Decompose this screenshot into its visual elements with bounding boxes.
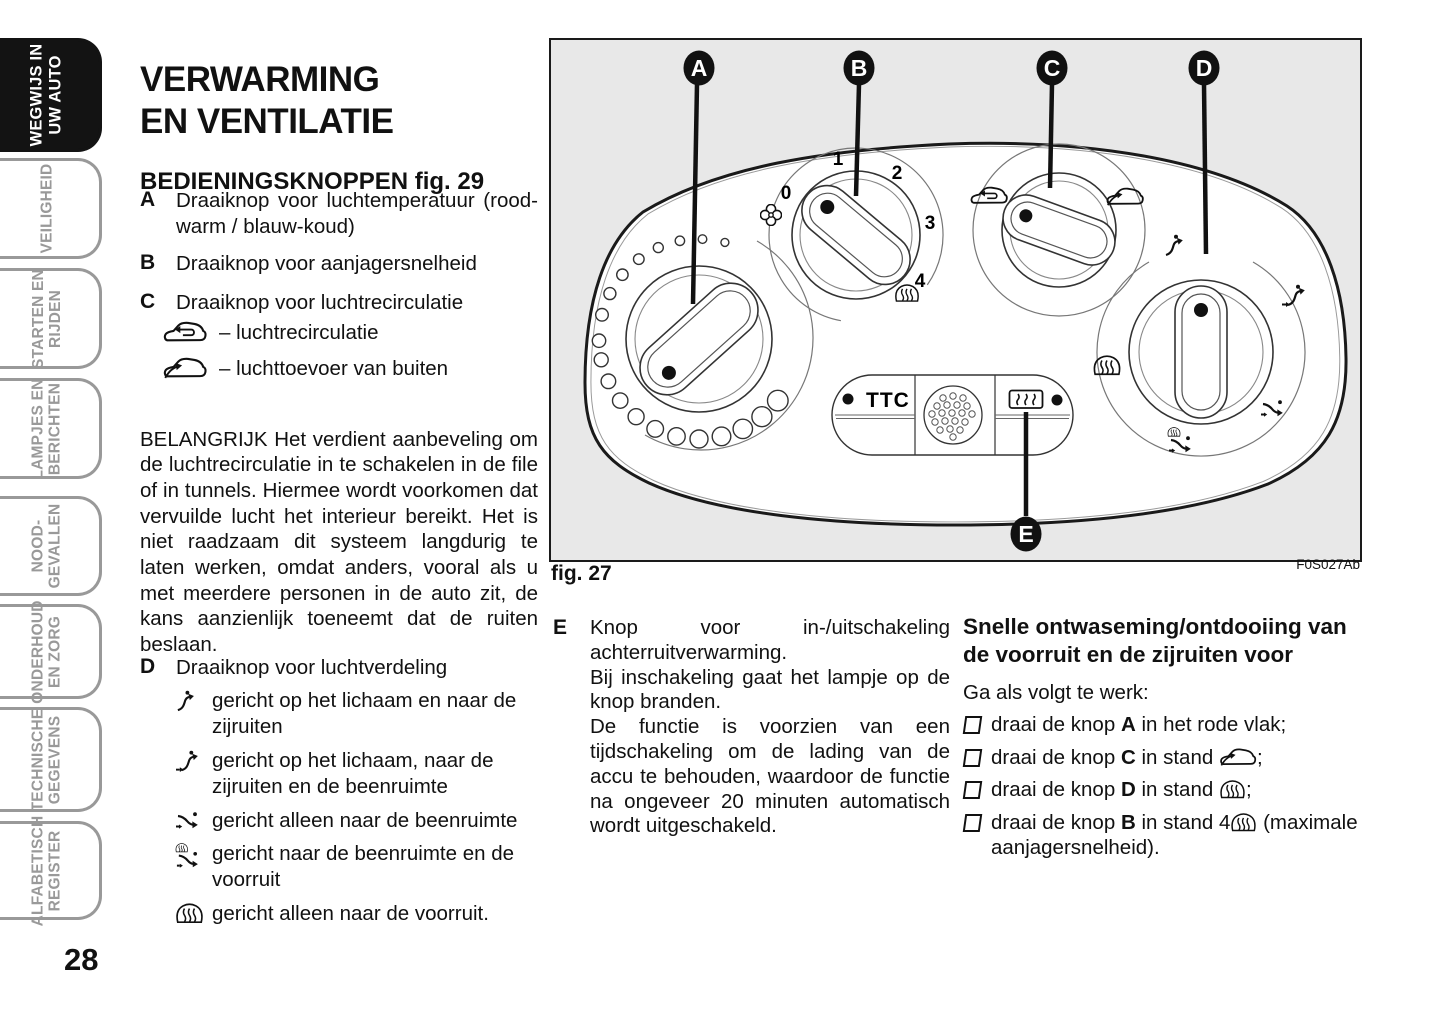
mode-text: – luchtrecirculatie <box>219 321 379 345</box>
checkbox-bullet-icon <box>963 749 983 767</box>
knob-text: Draaiknop voor luchtrecirculatie <box>176 290 538 316</box>
step-text: draai de knop <box>991 778 1115 801</box>
windshield-defrost-icon <box>175 903 204 925</box>
knob-text: Draaiknop voor aanjagersnelheid <box>176 251 538 277</box>
air-feet-windshield-icon <box>175 843 200 869</box>
mode-text: gericht op het lichaam, naar de zijruite… <box>212 748 540 800</box>
defrost-intro: Ga als volgt te werk: <box>963 681 1365 705</box>
svg-text:B: B <box>851 55 868 81</box>
step-text: in stand <box>1141 778 1213 801</box>
tab-noodgevallen: NOOD-GEVALLEN <box>0 496 102 596</box>
item-e-paragraph: Bij inschakeling gaat het lampje op de k… <box>590 666 950 716</box>
tab-label: STARTEN EN <box>29 269 46 369</box>
speaker-grille-icon <box>924 386 982 444</box>
tab-label: UW AUTO <box>47 44 66 147</box>
mode-text: gericht naar de beenruimte en de voorrui… <box>212 841 540 893</box>
page-number: 28 <box>64 942 98 978</box>
tab-label: NOOD- <box>29 504 46 589</box>
recirculation-car-icon <box>163 320 207 345</box>
tab-label: REGISTER <box>47 815 64 926</box>
figure-caption: fig. 27 <box>551 562 612 586</box>
step-text: draai de knop <box>991 713 1115 736</box>
air-distribution-row: gericht alleen naar de beenruimte <box>175 808 540 834</box>
windshield-defrost-icon <box>1219 780 1246 800</box>
item-e-paragraph: Knop voor in-/uitschakeling achterruitve… <box>590 616 950 666</box>
tab-label: RIJDEN <box>46 269 63 369</box>
tab-wegwijs-in-uw-auto: WEGWIJS INUW AUTO <box>0 38 102 152</box>
knob-item-a: A Draaiknop voor luchtemperatuur (rood-w… <box>140 188 538 240</box>
figure-27: 1 2 0 3 4 <box>549 38 1362 567</box>
knob-text: Draaiknop voor luchtemperatuur (rood-war… <box>176 188 538 240</box>
heater-control-panel-diagram: 1 2 0 3 4 <box>549 38 1362 562</box>
tab-label: GEVALLEN <box>46 504 63 589</box>
tab-onderhoud-en-zorg: ONDERHOUDEN ZORG <box>0 604 102 699</box>
air-distribution-row: gericht alleen naar de voorruit. <box>175 901 540 927</box>
step-text: ; <box>1257 746 1263 769</box>
air-body-side-windows-icon <box>175 690 196 713</box>
knob-item-b: B Draaiknop voor aanjagersnelheid <box>140 251 538 277</box>
figure-code: F0S027Ab <box>1248 557 1360 572</box>
checkbox-bullet-icon <box>963 781 983 799</box>
svg-text:A: A <box>691 55 708 81</box>
tab-lampjes-en-berichten: LAMPJES ENBERICHTEN <box>0 378 102 479</box>
outside-air-car-icon <box>1219 747 1257 768</box>
windshield-defrost-icon <box>1230 813 1257 833</box>
knob-text: Draaiknop voor luchtverdeling <box>176 655 538 681</box>
tab-label: VEILIGHEID <box>38 164 55 254</box>
outside-air-car-icon <box>163 356 207 381</box>
checkbox-bullet-icon <box>963 814 983 832</box>
tab-label: BERICHTEN <box>47 378 64 479</box>
tab-label: WEGWIJS IN <box>28 44 47 147</box>
tab-label: ALFABETISCH <box>30 815 47 926</box>
manual-page: WEGWIJS INUW AUTO VEILIGHEID STARTEN ENR… <box>0 0 1445 1018</box>
air-distribution-row: gericht op het lichaam, naar de zijruite… <box>175 748 540 800</box>
tab-label: ONDERHOUD <box>29 600 46 703</box>
defrost-step-2: draai de knop C in stand ; <box>963 745 1365 771</box>
center-console: TTC <box>832 375 1073 455</box>
svg-text:D: D <box>1196 55 1213 81</box>
svg-text:C: C <box>1044 55 1061 81</box>
air-body-side-windows-feet-icon <box>175 750 200 773</box>
knob-item-e: E Knop voor in-/uitschakeling achterruit… <box>553 616 950 839</box>
knob-ref: D <box>1121 778 1136 801</box>
mode-text: gericht op het lichaam en naar de zijrui… <box>212 688 540 740</box>
tab-label: TECHNISCHE <box>29 708 46 811</box>
fan-speed-3-label: 3 <box>925 213 936 234</box>
defrost-heading: Snelle ontwaseming/ontdooiing van de voo… <box>963 613 1365 668</box>
knob-letter: B <box>140 251 155 275</box>
knob-ref: B <box>1121 811 1136 834</box>
page-title: VERWARMING EN VENTILATIE <box>140 59 393 143</box>
knob-letter: A <box>140 188 155 212</box>
step-text: ; <box>1246 778 1252 801</box>
defrost-step-1: draai de knop A in het rode vlak; <box>963 712 1365 738</box>
knob-ref: A <box>1121 713 1136 736</box>
checkbox-bullet-icon <box>963 716 983 734</box>
fan-speed-2-label: 2 <box>892 163 903 184</box>
tab-starten-en-rijden: STARTEN ENRIJDEN <box>0 268 102 369</box>
svg-text:E: E <box>1018 521 1033 547</box>
tab-label: GEGEVENS <box>46 708 63 811</box>
tab-technische-gegevens: TECHNISCHEGEGEVENS <box>0 707 102 812</box>
item-e-paragraph: De functie is voorzien van een tijdschak… <box>590 715 950 839</box>
defrost-step-3: draai de knop D in stand ; <box>963 777 1365 803</box>
step-text: in stand 4 <box>1141 811 1230 834</box>
step-text: draai de knop <box>991 746 1115 769</box>
tab-veiligheid: VEILIGHEID <box>0 158 102 259</box>
ttc-button-label: TTC <box>866 389 910 412</box>
fan-speed-0-label: 0 <box>781 183 792 204</box>
air-distribution-row: gericht op het lichaam en naar de zijrui… <box>175 688 540 740</box>
important-note: BELANGRIJK Het verdient aanbeveling om d… <box>140 427 538 658</box>
knob-item-c: C Draaiknop voor luchtrecirculatie <box>140 290 538 316</box>
step-text: in stand <box>1141 746 1213 769</box>
fan-speed-1-label: 1 <box>833 149 844 170</box>
air-feet-icon <box>175 810 199 830</box>
outside-air-mode-row: – luchttoevoer van buiten <box>163 356 448 381</box>
ttc-indicator-dot <box>843 394 854 405</box>
defrost-step-4: draai de knop B in stand 4 (maximale aan… <box>963 810 1365 861</box>
mode-text: – luchttoevoer van buiten <box>219 357 448 381</box>
tab-alfabetisch-register: ALFABETISCHREGISTER <box>0 821 102 920</box>
tab-label: EN ZORG <box>46 600 63 703</box>
page-title-line2: EN VENTILATIE <box>140 101 393 143</box>
mode-text: gericht alleen naar de voorruit. <box>212 901 540 927</box>
tab-label: LAMPJES EN <box>30 378 47 479</box>
knob-letter: E <box>553 616 567 640</box>
knob-letter: C <box>140 290 155 314</box>
step-text: in het rode vlak; <box>1141 713 1286 736</box>
air-distribution-row: gericht naar de beenruimte en de voorrui… <box>175 841 540 893</box>
rear-window-indicator-dot <box>1052 395 1063 406</box>
step-text: draai de knop <box>991 811 1115 834</box>
knob-letter: D <box>140 655 155 679</box>
page-title-line1: VERWARMING <box>140 59 393 101</box>
knob-item-d: D Draaiknop voor luchtverdeling <box>140 655 538 681</box>
knob-ref: C <box>1121 746 1136 769</box>
quick-defrost-section: Snelle ontwaseming/ontdooiing van de voo… <box>963 613 1365 861</box>
recirculation-mode-row: – luchtrecirculatie <box>163 320 379 345</box>
mode-text: gericht alleen naar de beenruimte <box>212 808 540 834</box>
